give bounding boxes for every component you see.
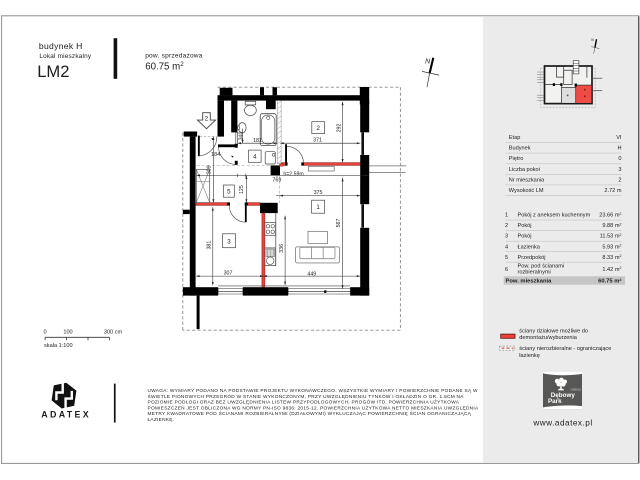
svg-text:POZIOMIE PODŁOGI ORAZ BEZ UWZG: POZIOMIE PODŁOGI ORAZ BEZ UWZGLĘDNIENIA … (148, 399, 460, 406)
svg-text:Park: Park (548, 398, 562, 405)
svg-text:demontażu/wyburzenia: demontażu/wyburzenia (519, 335, 577, 341)
svg-text:budynek H: budynek H (39, 41, 83, 51)
svg-text:łazienkę: łazienkę (519, 353, 540, 359)
svg-text:Przedpokój: Przedpokój (518, 255, 546, 261)
svg-text:1.42 m2: 1.42 m2 (602, 266, 621, 273)
svg-text:Nr mieszkania: Nr mieszkania (509, 177, 545, 183)
svg-text:N: N (591, 38, 594, 42)
svg-text:9.88 m2: 9.88 m2 (602, 222, 621, 229)
svg-text:23.66 m2: 23.66 m2 (599, 212, 621, 219)
svg-text:Budynek: Budynek (509, 146, 531, 152)
svg-text:4: 4 (253, 154, 257, 161)
svg-text:6: 6 (505, 267, 508, 273)
svg-text:Piętro: Piętro (509, 156, 524, 162)
svg-text:Wysokość LM: Wysokość LM (509, 188, 544, 194)
svg-text:292: 292 (336, 124, 342, 133)
svg-text:LM2: LM2 (37, 62, 69, 81)
svg-text:5: 5 (227, 189, 231, 196)
svg-text:POMIESZCZEŃ JEST OBLICZONA WG: POMIESZCZEŃ JEST OBLICZONA WG NORMY PN-I… (148, 404, 479, 411)
svg-text:2: 2 (505, 223, 508, 229)
svg-text:0: 0 (618, 156, 621, 162)
svg-text:ADATEX: ADATEX (41, 409, 91, 419)
svg-text:371: 371 (313, 138, 322, 144)
svg-text:769: 769 (272, 178, 281, 184)
svg-text:Etap: Etap (509, 135, 521, 141)
svg-text:Pokój: Pokój (518, 223, 532, 229)
svg-text:381: 381 (206, 241, 212, 250)
svg-text:8.33 m2: 8.33 m2 (602, 254, 621, 261)
svg-text:60.75 m2: 60.75 m2 (145, 61, 184, 72)
svg-text:11.53 m2: 11.53 m2 (600, 233, 622, 240)
svg-text:3: 3 (227, 238, 231, 245)
svg-text:Lokal mieszkalny: Lokal mieszkalny (39, 53, 91, 60)
svg-text:336: 336 (279, 244, 285, 253)
svg-text:0: 0 (44, 330, 47, 336)
svg-text:100: 100 (63, 330, 72, 336)
svg-text:Pow. pod ścianami: Pow. pod ścianami (518, 264, 565, 270)
svg-text:5.93 m2: 5.93 m2 (602, 244, 621, 251)
svg-text:184: 184 (211, 152, 220, 158)
svg-text:1: 1 (316, 204, 320, 211)
svg-text:skala 1:100: skala 1:100 (44, 343, 73, 349)
svg-text:60.75 m2: 60.75 m2 (598, 278, 621, 285)
svg-text:Łazienka: Łazienka (518, 244, 541, 250)
svg-text:300 cm: 300 cm (104, 330, 123, 336)
svg-text:2: 2 (618, 177, 621, 183)
svg-text:ściany nierozbieralne - ograni: ściany nierozbieralne - ograniczające (519, 346, 611, 352)
svg-text:ŁAZIENKĘ.: ŁAZIENKĘ. (148, 417, 175, 423)
svg-text:pow. sprzedażowa: pow. sprzedażowa (145, 52, 203, 59)
svg-text:2.72 m: 2.72 m (604, 188, 621, 194)
svg-text:3: 3 (618, 167, 621, 173)
svg-text:rozbieralnymi: rozbieralnymi (518, 270, 551, 276)
svg-text:1: 1 (505, 213, 508, 219)
svg-text:340: 340 (238, 132, 244, 141)
svg-text:Pokój z aneksem kuchennym: Pokój z aneksem kuchennym (518, 213, 591, 219)
svg-text:309: 309 (206, 165, 212, 174)
svg-text:4: 4 (505, 244, 508, 250)
svg-text:449: 449 (307, 271, 316, 277)
svg-text:VI: VI (616, 135, 622, 141)
svg-text:307: 307 (224, 270, 233, 276)
svg-text:OSIEDLE: OSIEDLE (571, 388, 582, 391)
svg-text:Liczba pokoi: Liczba pokoi (509, 167, 540, 173)
svg-text:www.adatex.pl: www.adatex.pl (532, 418, 592, 427)
svg-text:UWAGA: WYMIARY PODANO NA PODST: UWAGA: WYMIARY PODANO NA PODSTAWIE PROJE… (148, 388, 479, 394)
svg-text:Pow. mieszkania: Pow. mieszkania (506, 279, 553, 285)
svg-text:5: 5 (505, 255, 508, 261)
svg-text:125: 125 (239, 185, 245, 194)
svg-text:ściany działowe możliwe do: ściany działowe możliwe do (519, 328, 588, 334)
svg-text:375: 375 (314, 190, 323, 196)
svg-text:2: 2 (316, 125, 320, 132)
svg-text:567: 567 (336, 219, 342, 228)
svg-text:181: 181 (253, 138, 262, 144)
svg-text:H: H (617, 146, 621, 152)
svg-text:h=2.59m: h=2.59m (283, 172, 303, 178)
svg-text:Pokój: Pokój (518, 234, 532, 240)
svg-text:3: 3 (505, 234, 508, 240)
